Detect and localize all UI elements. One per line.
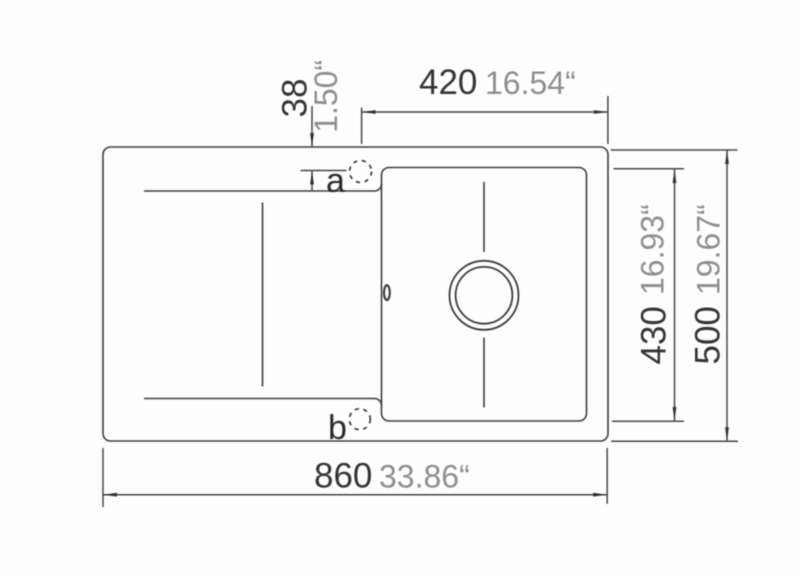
svg-text:420: 420 <box>419 63 477 102</box>
svg-text:33.86“: 33.86“ <box>379 458 470 494</box>
svg-text:500: 500 <box>689 306 728 364</box>
svg-text:b: b <box>328 409 347 447</box>
svg-text:1.50“: 1.50“ <box>308 60 344 133</box>
svg-text:430: 430 <box>635 306 674 364</box>
svg-text:16.54“: 16.54“ <box>485 65 576 101</box>
svg-text:19.67“: 19.67“ <box>691 204 727 295</box>
svg-text:860: 860 <box>314 456 372 495</box>
svg-text:a: a <box>326 162 345 200</box>
svg-text:16.93“: 16.93“ <box>635 204 671 295</box>
